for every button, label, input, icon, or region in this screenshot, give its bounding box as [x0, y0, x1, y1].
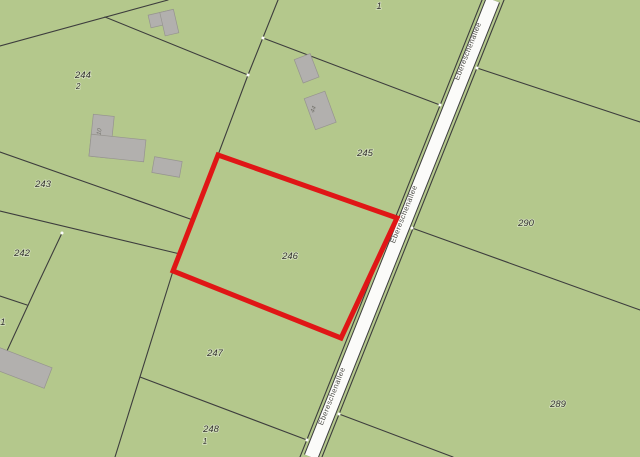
parcel-label-243: 243	[34, 179, 52, 190]
parcel-label-246: 246	[281, 251, 299, 262]
parcel-label-245: 245	[356, 148, 374, 159]
parcel-label-290: 290	[517, 218, 535, 229]
parcel-label-left-edge: 01	[0, 317, 6, 328]
parcel-label-248: 248	[202, 424, 220, 435]
parcel-label-248-den: 1	[203, 437, 207, 446]
parcel-label-244-den: 2	[75, 82, 81, 91]
parcel-label-1: 1	[376, 1, 381, 12]
parcel-label-242: 242	[13, 248, 31, 259]
parcel-ground	[0, 0, 640, 457]
map-canvas[interactable]: 1 244 2 243 242 01 245 246 247 248 1 290…	[0, 0, 640, 457]
parcel-label-247: 247	[206, 348, 224, 359]
cadastral-map-view[interactable]: 1 244 2 243 242 01 245 246 247 248 1 290…	[0, 0, 640, 457]
parcel-label-289: 289	[549, 399, 567, 410]
parcel-label-244: 244	[74, 70, 91, 81]
